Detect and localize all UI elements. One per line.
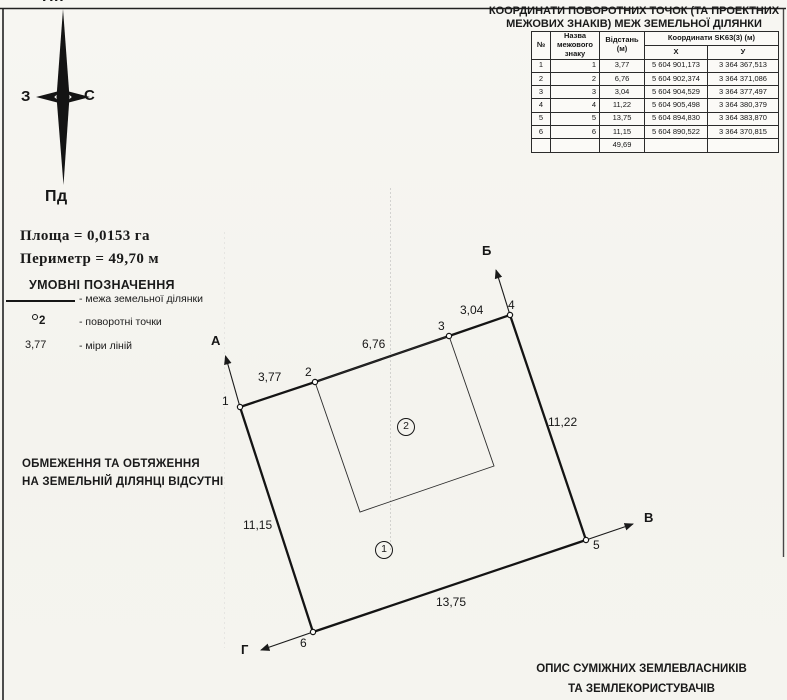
coord-table-title: КООРДИНАТИ ПОВОРОТНИХ ТОЧОК (ТА ПРОЕКТНИ… (484, 5, 784, 30)
vertex-marker-1 (237, 404, 242, 409)
cell-mark-name: 6 (551, 126, 600, 139)
table-row: 1 1 3,77 5 604 901,173 3 364 367,513 (532, 59, 779, 72)
col-header-y: У (708, 45, 779, 59)
table-row: 5 5 13,75 5 604 894,830 3 364 383,870 (532, 112, 779, 125)
cell-x-empty (645, 139, 708, 152)
legend-measure-symbol: 3,77 (25, 339, 46, 351)
vertex-marker-3 (446, 333, 451, 338)
legend-point-symbol-number: 2 (39, 315, 45, 327)
compass-east-label: С (84, 87, 95, 104)
cell-num: 4 (532, 99, 551, 112)
compass-west-label: З (21, 88, 31, 105)
cell-distance: 11,22 (600, 99, 645, 112)
coord-table-title-line2: МЕЖОВИХ ЗНАКІВ) МЕЖ ЗЕМЕЛЬНОЇ ДІЛЯНКИ (484, 18, 784, 31)
col-header-distance: Відстань (м) (600, 32, 645, 60)
edge-label-3-4: 3,04 (460, 303, 483, 317)
cell-x: 5 604 894,830 (645, 112, 708, 125)
direction-label-b: Б (482, 243, 491, 258)
parcel-boundary (240, 315, 586, 632)
direction-label-v: В (644, 510, 653, 525)
compass-north-label: Пн (42, 0, 64, 6)
restrictions-line1: ОБМЕЖЕННЯ ТА ОБТЯЖЕННЯ (22, 456, 223, 474)
edge-label-1-2: 3,77 (258, 370, 281, 384)
cell-y: 3 364 383,870 (708, 112, 779, 125)
col-header-mark-name: Назва межового знаку (551, 32, 600, 60)
adjacent-line2: ТА ЗЕМЛЕКОРИСТУВАЧІВ (506, 679, 777, 699)
compass-vertical-needle (57, 9, 70, 185)
edge-label-4-5: 11,22 (548, 415, 577, 429)
perimeter-value: Периметр = 49,70 м (20, 251, 159, 268)
vertex-label-2: 2 (305, 365, 312, 379)
cell-distance: 11,15 (600, 126, 645, 139)
edge-label-5-6: 13,75 (436, 595, 466, 609)
vertex-label-6: 6 (300, 636, 307, 650)
cell-x: 5 604 905,498 (645, 99, 708, 112)
vertex-marker-6 (310, 629, 315, 634)
edge-label-2-3: 6,76 (362, 337, 385, 351)
vertex-marker-5 (583, 537, 588, 542)
cell-total-distance: 49,69 (600, 139, 645, 152)
cell-mark-name: 2 (551, 72, 600, 85)
legend-boundary-label: - межа земельної ділянки (79, 293, 203, 305)
cell-name-empty (551, 139, 600, 152)
cell-num: 2 (532, 72, 551, 85)
legend-title: УМОВНІ ПОЗНАЧЕННЯ (29, 278, 175, 292)
vertex-label-4: 4 (508, 298, 515, 312)
vertex-label-3: 3 (438, 319, 445, 333)
cell-mark-name: 3 (551, 86, 600, 99)
cell-x: 5 604 890,522 (645, 126, 708, 139)
legend-boundary-line-symbol (6, 300, 75, 302)
cell-distance: 6,76 (600, 72, 645, 85)
cell-num: 5 (532, 112, 551, 125)
cell-x: 5 604 902,374 (645, 72, 708, 85)
col-header-num: № (532, 32, 551, 60)
cell-mark-name: 4 (551, 99, 600, 112)
cell-num: 3 (532, 86, 551, 99)
scanned-land-plan-page: Пн З С Пд КООРДИНАТИ ПОВОРОТНИХ ТОЧОК (Т… (0, 0, 787, 700)
vertex-markers (237, 312, 588, 634)
cell-distance: 3,04 (600, 86, 645, 99)
cell-num: 6 (532, 126, 551, 139)
compass-rose-icon (36, 9, 90, 185)
cell-mark-name: 1 (551, 59, 600, 72)
vertex-marker-4 (507, 312, 512, 317)
parcel-2-badge: 2 (397, 418, 415, 436)
cell-num-empty (532, 139, 551, 152)
cell-mark-name: 5 (551, 112, 600, 125)
restrictions-note: ОБМЕЖЕННЯ ТА ОБТЯЖЕННЯ НА ЗЕМЕЛЬНІЙ ДІЛЯ… (22, 456, 223, 491)
col-header-x: Х (645, 45, 708, 59)
vertex-label-1: 1 (222, 394, 229, 408)
edge-label-6-1: 11,15 (243, 518, 272, 532)
table-row: 3 3 3,04 5 604 904,529 3 364 377,497 (532, 86, 779, 99)
table-row: 4 4 11,22 5 604 905,498 3 364 380,379 (532, 99, 779, 112)
coordinates-table: № Назва межового знаку Відстань (м) Коор… (531, 31, 779, 153)
cell-y: 3 364 377,497 (708, 86, 779, 99)
legend-point-symbol: 2 (32, 314, 45, 327)
direction-label-a: А (211, 333, 220, 348)
cell-y: 3 364 370,815 (708, 126, 779, 139)
vertex-label-5: 5 (593, 538, 600, 552)
restrictions-line2: НА ЗЕМЕЛЬНІЙ ДІЛЯНЦІ ВІДСУТНІ (22, 474, 223, 492)
parcel-1-badge: 1 (375, 541, 393, 559)
table-header-row: № Назва межового знаку Відстань (м) Коор… (532, 32, 779, 46)
legend-point-label: - поворотні точки (79, 316, 162, 328)
cell-num: 1 (532, 59, 551, 72)
table-total-row: 49,69 (532, 139, 779, 152)
compass-south-label: Пд (45, 188, 68, 206)
cell-y: 3 364 371,086 (708, 72, 779, 85)
cell-y: 3 364 380,379 (708, 99, 779, 112)
adjacent-line1: ОПИС СУМІЖНИХ ЗЕМЛЕВЛАСНИКІВ (506, 659, 777, 679)
coord-table-title-line1: КООРДИНАТИ ПОВОРОТНИХ ТОЧОК (ТА ПРОЕКТНИ… (484, 5, 784, 18)
area-value: Площа = 0,0153 га (20, 228, 150, 245)
vertex-marker-2 (312, 379, 317, 384)
cell-x: 5 604 904,529 (645, 86, 708, 99)
turning-point-icon (32, 314, 38, 320)
legend-measure-label: - міри ліній (79, 340, 132, 352)
adjacent-owners-note: ОПИС СУМІЖНИХ ЗЕМЛЕВЛАСНИКІВ ТА ЗЕМЛЕКОР… (506, 659, 777, 699)
cell-x: 5 604 901,173 (645, 59, 708, 72)
cell-distance: 3,77 (600, 59, 645, 72)
cell-distance: 13,75 (600, 112, 645, 125)
cell-y-empty (708, 139, 779, 152)
table-row: 2 2 6,76 5 604 902,374 3 364 371,086 (532, 72, 779, 85)
col-header-coords-group: Координати SK63(3) (м) (645, 32, 779, 46)
table-row: 6 6 11,15 5 604 890,522 3 364 370,815 (532, 126, 779, 139)
cell-y: 3 364 367,513 (708, 59, 779, 72)
direction-label-g: Г (241, 642, 248, 657)
